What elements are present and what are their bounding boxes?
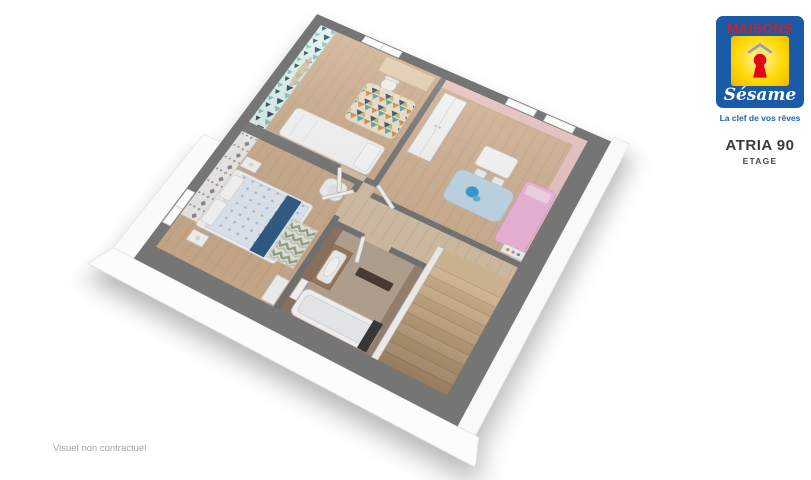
plan-subtitle: ETAGE: [712, 156, 808, 166]
logo-wordmark: MAISONS: [727, 22, 793, 36]
floorplan-svg: [79, 0, 644, 480]
page: MAISONS Sésame La clef de vos rêves ATRI…: [0, 0, 811, 480]
keyhole-stem: [754, 64, 767, 77]
maisons-sesame-logo: MAISONS Sésame: [716, 16, 804, 108]
keyhole-house-icon: [742, 40, 778, 82]
logo-yellow-square: [731, 36, 789, 86]
logo-script-name: Sésame: [724, 87, 796, 104]
plan-title: ATRIA 90: [712, 137, 808, 154]
floorplan-3d: [79, 0, 644, 480]
brand-tagline: La clef de vos rêves: [712, 113, 808, 123]
brand-block: MAISONS Sésame La clef de vos rêves ATRI…: [712, 16, 808, 166]
disclaimer-note: Visuel non contractuel: [53, 443, 146, 454]
roof-icon: [749, 45, 771, 52]
